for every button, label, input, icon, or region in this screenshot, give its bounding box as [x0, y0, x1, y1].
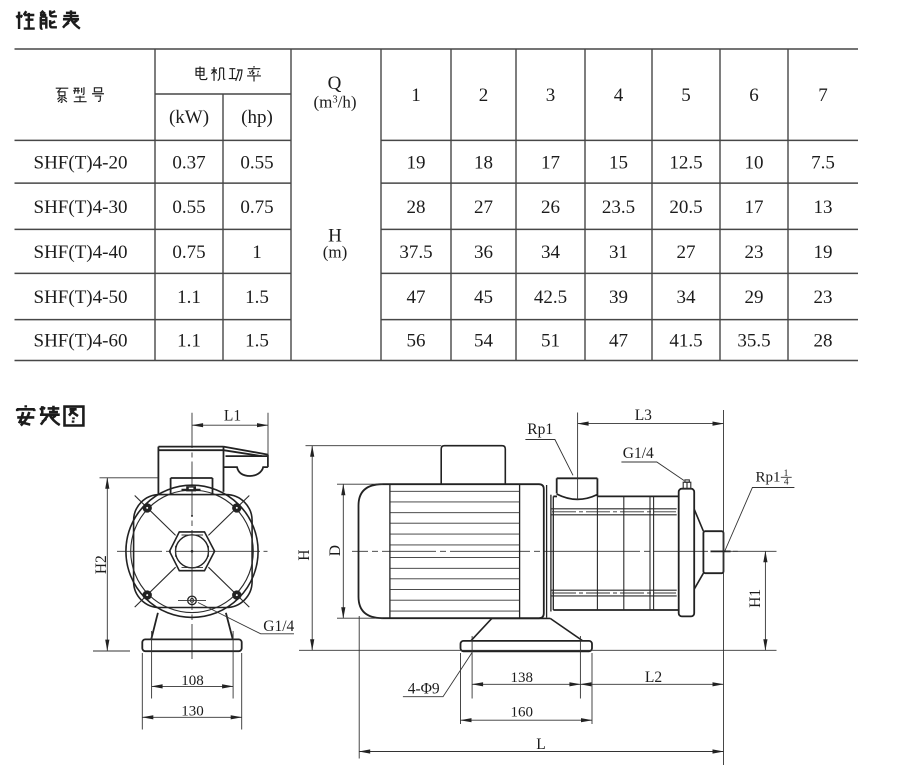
svg-text:51: 51 [541, 331, 560, 352]
svg-text:Rp1: Rp1 [756, 470, 781, 486]
svg-text:(hp): (hp) [241, 107, 273, 128]
svg-text:1: 1 [411, 85, 421, 106]
svg-text:SHF(T)4-30: SHF(T)4-30 [34, 197, 128, 218]
svg-text:54: 54 [474, 331, 494, 352]
svg-text:(kW): (kW) [169, 107, 209, 128]
svg-text:34: 34 [677, 287, 697, 308]
svg-text:1.1: 1.1 [177, 331, 201, 352]
svg-text:17: 17 [745, 197, 764, 218]
svg-text:37.5: 37.5 [399, 242, 432, 263]
svg-text:G1/4: G1/4 [263, 618, 294, 635]
svg-text:Rp1: Rp1 [527, 421, 553, 438]
svg-text:47: 47 [609, 331, 628, 352]
svg-text:34: 34 [541, 242, 561, 263]
svg-text:108: 108 [181, 673, 204, 689]
svg-text:4: 4 [784, 478, 789, 488]
svg-text:(m): (m) [323, 243, 348, 262]
svg-text:29: 29 [745, 287, 764, 308]
svg-text:1.5: 1.5 [245, 287, 269, 308]
svg-text:36: 36 [474, 242, 493, 263]
svg-text:56: 56 [407, 331, 426, 352]
svg-text:SHF(T)4-50: SHF(T)4-50 [34, 287, 128, 308]
svg-text:17: 17 [541, 152, 560, 173]
svg-text:45: 45 [474, 287, 493, 308]
svg-text:10: 10 [745, 152, 764, 173]
svg-text:42.5: 42.5 [534, 287, 567, 308]
svg-text:31: 31 [609, 242, 628, 263]
svg-text:19: 19 [407, 152, 426, 173]
svg-text:G1/4: G1/4 [623, 445, 654, 462]
svg-text:35.5: 35.5 [737, 331, 770, 352]
svg-text:27: 27 [474, 197, 493, 218]
svg-text:SHF(T)4-40: SHF(T)4-40 [34, 242, 128, 263]
svg-text:6: 6 [749, 85, 759, 106]
svg-text:18: 18 [474, 152, 493, 173]
svg-text:160: 160 [510, 705, 533, 721]
svg-text:47: 47 [407, 287, 426, 308]
svg-text:SHF(T)4-20: SHF(T)4-20 [34, 152, 128, 173]
svg-text:7: 7 [818, 85, 828, 106]
svg-text:39: 39 [609, 287, 628, 308]
svg-text:130: 130 [181, 704, 204, 720]
svg-text:5: 5 [681, 85, 691, 106]
svg-text:0.55: 0.55 [172, 197, 205, 218]
svg-text:Q: Q [328, 73, 342, 94]
svg-text:12.5: 12.5 [669, 152, 702, 173]
svg-text:7.5: 7.5 [811, 152, 835, 173]
svg-text:20.5: 20.5 [669, 197, 702, 218]
svg-text:23: 23 [745, 242, 764, 263]
svg-text:4-Φ9: 4-Φ9 [408, 681, 440, 698]
svg-text:26: 26 [541, 197, 560, 218]
svg-text:H: H [296, 550, 313, 561]
svg-text:13: 13 [814, 197, 833, 218]
svg-text:3: 3 [546, 85, 556, 106]
svg-text:19: 19 [814, 242, 833, 263]
svg-text:15: 15 [609, 152, 628, 173]
svg-text:23.5: 23.5 [602, 197, 635, 218]
svg-text:D: D [327, 545, 344, 556]
svg-text:1.1: 1.1 [177, 287, 201, 308]
svg-text:41.5: 41.5 [669, 331, 702, 352]
svg-text:138: 138 [510, 670, 533, 686]
svg-text:SHF(T)4-60: SHF(T)4-60 [34, 331, 128, 352]
svg-text:0.75: 0.75 [172, 242, 205, 263]
svg-text:L: L [536, 736, 545, 753]
svg-text:1.5: 1.5 [245, 331, 269, 352]
svg-text:0.55: 0.55 [240, 152, 273, 173]
svg-text:H1: H1 [747, 589, 764, 608]
svg-text:27: 27 [677, 242, 696, 263]
svg-text:L1: L1 [224, 408, 241, 425]
svg-text:0.37: 0.37 [172, 152, 205, 173]
svg-text:L3: L3 [635, 407, 652, 424]
svg-text:28: 28 [407, 197, 426, 218]
svg-text:0.75: 0.75 [240, 197, 273, 218]
svg-text:1: 1 [252, 242, 262, 263]
svg-text:2: 2 [479, 85, 489, 106]
svg-text:28: 28 [814, 331, 833, 352]
svg-text:L2: L2 [645, 669, 662, 686]
svg-text:4: 4 [614, 85, 624, 106]
svg-text:23: 23 [814, 287, 833, 308]
svg-text:H2: H2 [93, 555, 110, 574]
